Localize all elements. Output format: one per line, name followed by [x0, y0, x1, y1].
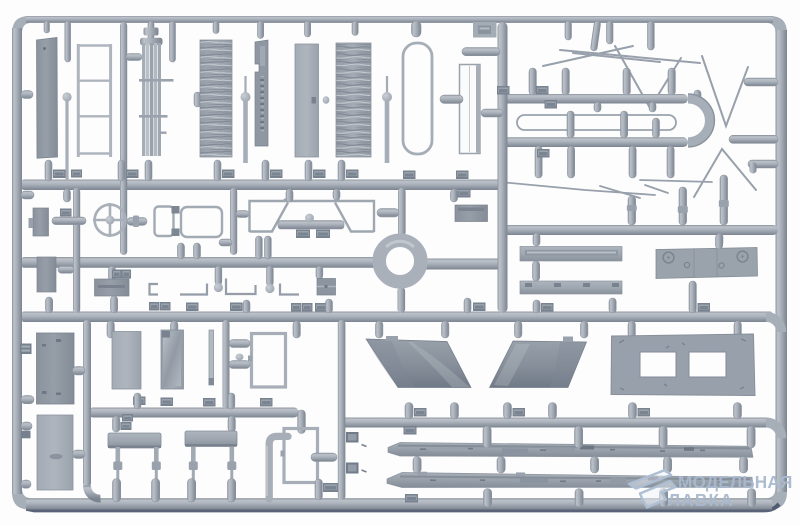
svg-text:ЛАВКА: ЛАВКА: [668, 490, 734, 510]
svg-text:МОДЕЛЬНАЯ: МОДЕЛЬНАЯ: [678, 472, 793, 492]
